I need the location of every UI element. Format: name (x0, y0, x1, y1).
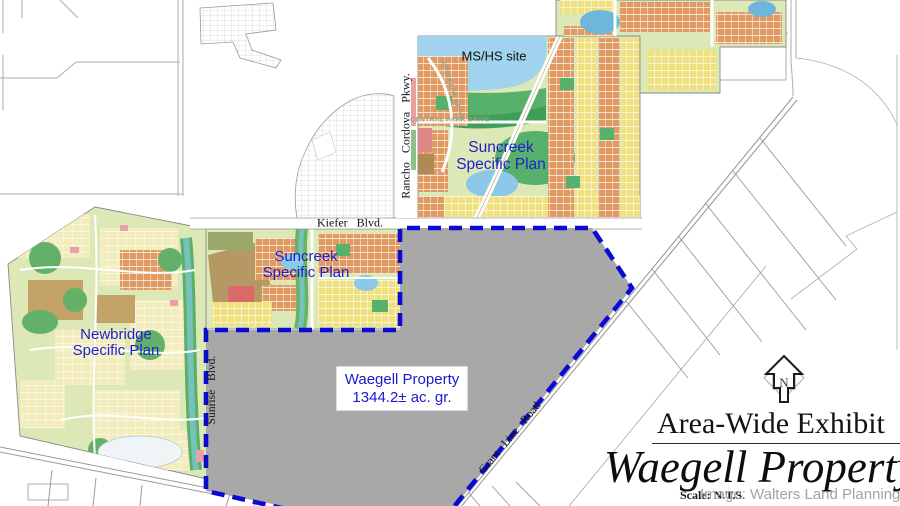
exhibit-title: Area-Wide Exhibit (657, 407, 885, 441)
area-wide-exhibit-map: MS/HS site Suncreek Specific Plan Suncre… (0, 0, 900, 506)
sunrise-blvd-label: Sunrise Blvd. (206, 356, 218, 425)
north-arrow-icon: N (758, 354, 810, 406)
suncreek-south-label: Suncreek Specific Plan (263, 249, 350, 281)
suncreek-north-plan-area (418, 36, 640, 228)
waegell-property-label: Waegell Property 1344.2± ac. gr. (336, 366, 468, 411)
newbridge-label: Newbridge Specific Plan (73, 327, 160, 359)
suncreek-north-label: Suncreek Specific Plan (456, 139, 546, 173)
kiefer-blvd-label: Kiefer Blvd. (317, 216, 383, 231)
north-arrow-letter: N (779, 375, 789, 390)
image-credit-watermark: Image: Walters Land Planning (700, 486, 900, 503)
ms-hs-site-label: MS/HS site (461, 49, 526, 64)
rancho-cordova-pkwy-label: Rancho Cordova Pkwy. (399, 73, 414, 199)
unshaded-plat-areas (200, 3, 394, 222)
central-park-drive-label: CENTRAL PARK DRIVE (410, 117, 490, 124)
